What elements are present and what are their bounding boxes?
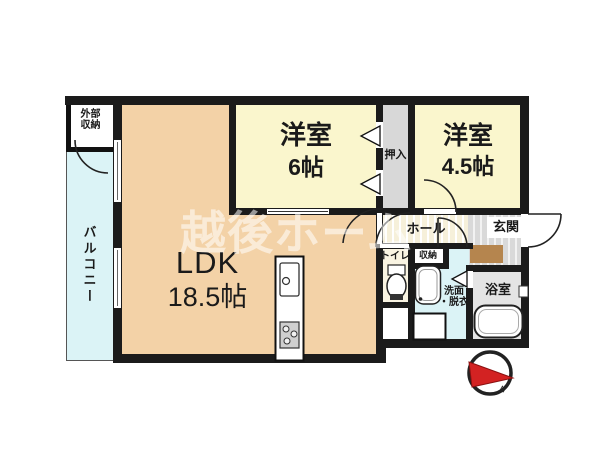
compass-icon: N xyxy=(469,352,513,395)
entrance-label: 玄関 xyxy=(487,217,525,238)
hall-label: ホール xyxy=(388,220,464,238)
oshiire-label: 押入 xyxy=(378,147,413,163)
western-room-6-size-label: 6帖 xyxy=(233,152,379,182)
sliding-door-room6 xyxy=(267,209,329,214)
door-gap-toilet xyxy=(380,244,409,248)
wall-outer-left xyxy=(113,96,122,363)
wall-outer-top xyxy=(65,96,529,105)
wall-storage-bottom xyxy=(408,263,449,269)
wall-bath-top xyxy=(466,265,529,272)
washroom-label: 洗面 ・脱衣 xyxy=(438,279,470,315)
door-arc-front-entrance xyxy=(528,214,561,247)
western-room-45-size-label: 4.5帖 xyxy=(412,152,524,182)
bathroom-room xyxy=(470,268,523,341)
ldk-size-label: 18.5帖 xyxy=(110,281,305,315)
exterior-storage-label: 外部 収納 xyxy=(68,100,113,140)
entrance-step xyxy=(470,245,503,263)
compass-needle xyxy=(469,362,513,387)
bathroom-label: 浴室 xyxy=(472,281,524,299)
toilet-room-lower-floor xyxy=(383,308,409,339)
toilet-label: トイレ xyxy=(378,250,412,263)
compass-letter: N xyxy=(498,384,508,395)
storage-label: 収納 xyxy=(412,249,444,262)
ldk-name-label: LDK xyxy=(110,245,305,281)
balcony-label: バルコニー xyxy=(74,190,102,340)
western-room-45-name-label: 洋室 xyxy=(412,120,524,152)
wall-outer-bottom-right xyxy=(378,339,529,348)
floor-plan: N 外部 収納 バルコニー LDK 18.5帖 洋室 6帖 押入 洋室 4.5帖… xyxy=(0,0,600,454)
door-gap-ldk-hall xyxy=(377,213,382,244)
door-gap-room45 xyxy=(424,209,456,214)
western-room-6-name-label: 洋室 xyxy=(233,120,379,152)
window-balcony-upper xyxy=(114,140,121,202)
wall-outer-bottom-ldk xyxy=(113,354,386,363)
